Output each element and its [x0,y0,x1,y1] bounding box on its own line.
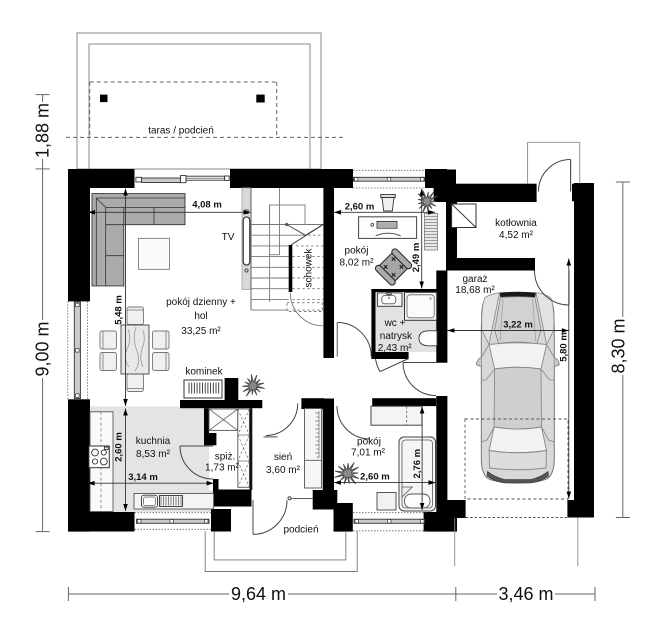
svg-text:pokój: pokój [345,246,369,257]
svg-text:2,43 m²: 2,43 m² [378,343,413,354]
svg-text:pokój: pokój [357,437,381,448]
svg-text:4,08 m: 4,08 m [192,200,222,211]
svg-text:2,60 m: 2,60 m [360,472,390,483]
svg-text:1,88 m: 1,88 m [33,103,53,158]
svg-text:3,60 m²: 3,60 m² [266,465,301,476]
svg-text:2,60 m: 2,60 m [345,202,375,213]
svg-text:hol: hol [194,311,207,322]
svg-text:schowek: schowek [304,248,315,288]
svg-text:5,48 m: 5,48 m [114,295,125,325]
svg-text:sień: sień [274,452,292,463]
svg-text:garaż: garaż [462,274,487,285]
svg-text:8,53 m²: 8,53 m² [136,449,171,460]
svg-text:spiż.: spiż. [215,452,236,463]
svg-text:9,00 m: 9,00 m [33,321,53,376]
svg-text:natrysk: natrysk [380,331,413,342]
svg-text:kuchnia: kuchnia [136,436,171,447]
svg-text:2,60 m: 2,60 m [114,432,125,462]
svg-text:pokój dzienny +: pokój dzienny + [166,297,236,308]
svg-text:1,73 m²: 1,73 m² [205,463,240,474]
svg-text:33,25 m²: 33,25 m² [181,326,221,337]
svg-text:2,49 m: 2,49 m [411,243,422,273]
svg-text:kotłownia: kotłownia [495,218,537,229]
svg-text:18,68 m²: 18,68 m² [455,285,495,296]
svg-text:TV: TV [222,232,235,243]
svg-text:3,14 m: 3,14 m [128,472,158,483]
svg-text:taras / podcień: taras / podcień [148,126,214,137]
svg-text:podcień: podcień [283,525,318,536]
svg-text:2,76 m: 2,76 m [412,449,423,479]
svg-text:kominek: kominek [185,367,223,378]
svg-text:7,01 m²: 7,01 m² [351,448,386,459]
svg-text:3,46 m: 3,46 m [498,584,553,604]
svg-text:3,22 m: 3,22 m [503,320,533,331]
svg-text:9,64 m: 9,64 m [231,584,286,604]
svg-text:8,02 m²: 8,02 m² [340,258,375,269]
svg-text:5,80 m: 5,80 m [559,332,570,362]
svg-text:8,30 m: 8,30 m [609,318,629,373]
svg-text:4,52 m²: 4,52 m² [499,230,534,241]
svg-text:wc +: wc + [384,318,406,329]
